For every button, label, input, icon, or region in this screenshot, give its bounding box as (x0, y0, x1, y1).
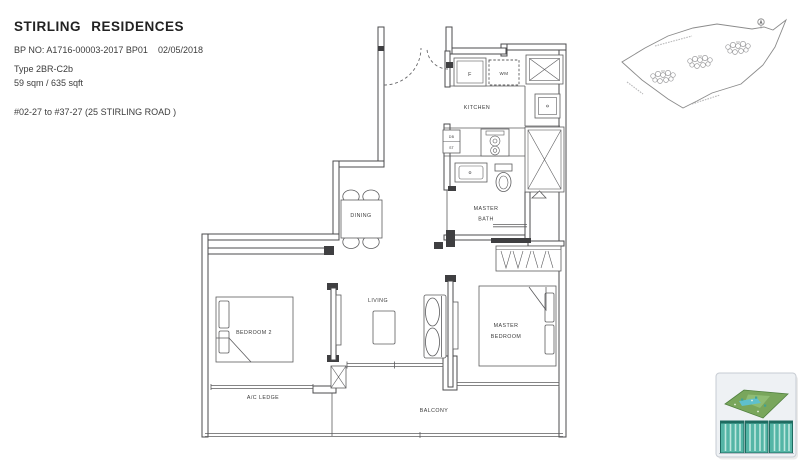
thumbnail-tower-elevations (719, 421, 794, 454)
floor-plan-svg: F WM DB (0, 0, 800, 460)
ac-unit-box (331, 366, 346, 388)
washing-machine: WM (489, 60, 519, 85)
building-cluster-3 (726, 41, 751, 54)
db-label: DB (449, 135, 455, 139)
wardrobe (496, 246, 561, 271)
master-bedroom: MASTER BEDROOM (448, 246, 561, 387)
db-st-riser: DB ST (443, 130, 460, 153)
fridge: F (454, 58, 486, 86)
bedroom2-label: BEDROOM 2 (236, 330, 272, 336)
kitchen-sink (535, 94, 560, 118)
living-room: LIVING (368, 295, 446, 358)
living-label: LIVING (368, 298, 388, 304)
kitchen-label: KITCHEN (464, 105, 490, 111)
entry-door-swing (384, 48, 448, 85)
bedroom2-door (336, 295, 341, 345)
dining-label: DINING (350, 213, 371, 219)
dining-set: DINING (341, 190, 382, 249)
washing-machine-label: WM (500, 71, 509, 76)
fridge-label: F (468, 72, 472, 78)
tower-3 (770, 421, 793, 453)
windows-and-rails: A/C LEDGE BALCONY (205, 362, 563, 439)
tower-1 (721, 421, 745, 453)
building-cluster-1 (651, 70, 676, 83)
bedroom2-wall (331, 288, 336, 360)
site-map (622, 19, 786, 108)
toilet (495, 164, 512, 192)
tower-2 (746, 421, 769, 453)
ac-ledge-label: A/C LEDGE (247, 395, 279, 401)
bath-sliding-door (491, 238, 531, 243)
master-bedroom-label-1: MASTER (494, 323, 519, 329)
master-bedroom-label-2: BEDROOM (491, 334, 522, 340)
coffee-table (373, 311, 395, 344)
service-shaft-top (526, 55, 563, 84)
building-cluster-2 (688, 55, 713, 68)
unit-walls (202, 27, 566, 437)
sofa (424, 295, 446, 358)
service-shaft-main (525, 127, 564, 192)
master-bath-label-1: MASTER (474, 206, 499, 212)
project-thumbnail (716, 373, 798, 460)
master-bedroom-wall (448, 281, 453, 387)
master-bedroom-door (453, 302, 458, 349)
floorplan-page: STIRLING RESIDENCES BP NO: A1716-00003-2… (0, 0, 800, 460)
st-label: ST (449, 146, 455, 150)
stove (481, 129, 509, 156)
basin (455, 163, 487, 182)
balcony-label: BALCONY (420, 408, 448, 414)
bedroom2: BEDROOM 2 (216, 288, 341, 362)
master-bath-label-2: BATH (478, 217, 494, 223)
